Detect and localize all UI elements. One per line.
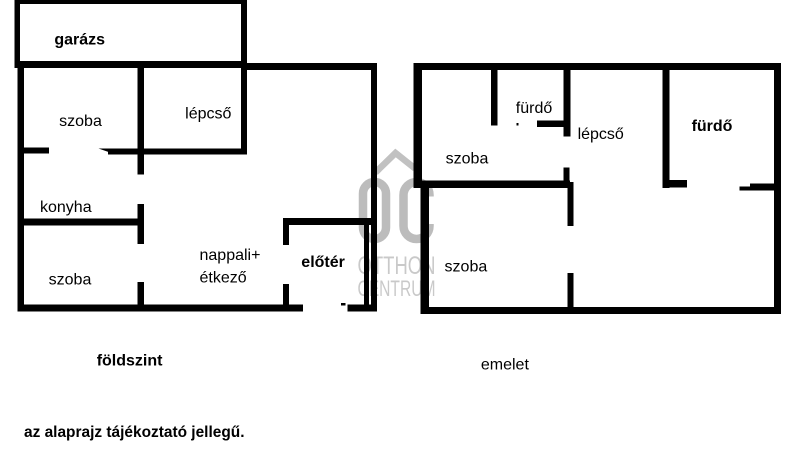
svg-text:lépcső: lépcső bbox=[185, 106, 231, 123]
svg-text:előtér: előtér bbox=[301, 254, 345, 271]
svg-text:garázs: garázs bbox=[54, 32, 105, 49]
svg-text:étkező: étkező bbox=[200, 270, 247, 287]
svg-text:konyha: konyha bbox=[40, 199, 92, 216]
svg-text:nappali+: nappali+ bbox=[200, 247, 261, 264]
svg-text:lépcső: lépcső bbox=[578, 126, 624, 143]
svg-text:szoba: szoba bbox=[59, 113, 102, 130]
svg-text:fürdő: fürdő bbox=[516, 100, 553, 117]
svg-text:fürdő: fürdő bbox=[692, 118, 733, 135]
svg-text:szoba: szoba bbox=[49, 272, 92, 289]
svg-text:szoba: szoba bbox=[445, 259, 488, 276]
svg-text:az alaprajz tájékoztató jelleg: az alaprajz tájékoztató jellegű. bbox=[24, 424, 245, 441]
svg-text:földszint: földszint bbox=[97, 353, 163, 370]
svg-text:emelet: emelet bbox=[481, 357, 530, 374]
svg-text:szoba: szoba bbox=[446, 150, 489, 167]
